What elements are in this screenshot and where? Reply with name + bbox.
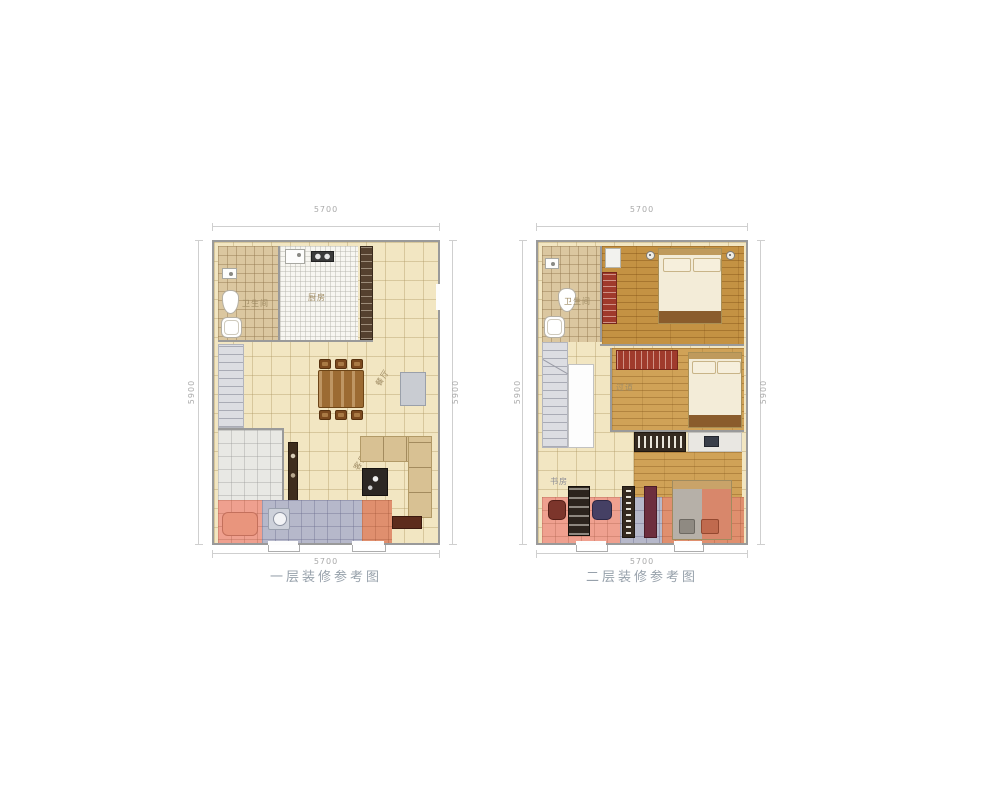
cushion-icon [679,519,695,534]
chair [319,410,331,420]
bed-headboard [673,481,731,489]
bathroom-label: 卫生间 [242,300,269,308]
bed-headboard [659,249,721,255]
floor1-utility-room [218,430,282,502]
wall [282,428,284,504]
window-sill [268,545,300,552]
window-sill [674,545,704,552]
wall [600,344,744,346]
pillow-icon [693,258,721,272]
bathtub-icon [221,317,242,338]
double-bed [688,352,742,428]
dim-right: 5900 [452,372,460,412]
bedside-lamp-icon [646,251,655,260]
study-desk [568,486,590,536]
dim-bottom: 5700 [212,558,440,566]
staircase [542,342,568,448]
coffee-table [362,468,388,496]
kitchen-label: 厨房 [308,294,326,302]
bookcase [622,486,635,538]
bedside-lamp-icon [726,251,735,260]
dim-top: 5700 [536,206,748,214]
floor1-plan: 卫生间 厨房 餐厅 客厅 [212,240,440,545]
study-label: 书房 [550,478,568,486]
bed-blanket [659,311,721,323]
dim-bottom: 5700 [536,558,748,566]
wardrobe [602,272,617,324]
pillow-icon [663,258,691,272]
dim-line [536,226,748,227]
window-sill [352,545,386,552]
chair [592,500,612,520]
bed-headboard [689,353,741,359]
dresser [605,248,621,268]
stove-icon [311,251,334,262]
dim-line [198,240,199,545]
side-cabinet [392,516,422,529]
staircase [218,344,244,428]
chair [335,359,347,369]
bed-blanket [689,415,741,427]
dining-label: 餐厅 [375,368,391,388]
pillow-icon [692,361,716,374]
chair [548,500,566,520]
dim-right: 5900 [760,372,768,412]
dim-line [536,553,748,554]
balcony-daybed [222,512,258,536]
floor1-caption: 一层装修参考图 [212,571,440,584]
chair [351,359,363,369]
chair [335,410,347,420]
dim-left: 5900 [514,372,522,412]
chair [351,410,363,420]
wardrobe [644,486,657,538]
pantry-cabinet [360,246,373,340]
corridor-label: 过道 [616,384,634,392]
bookshelf [634,432,686,452]
entry-door-opening [436,284,440,310]
laptop-icon [704,436,719,447]
dim-top: 5700 [212,206,440,214]
shoe-cabinet [400,372,426,406]
bathroom-label: 卫生间 [564,298,591,306]
single-bed [672,480,732,540]
dining-table [318,370,364,408]
window-sill [576,545,608,552]
balcony-salmon-zone [362,500,392,543]
wall [218,340,373,342]
sofa [360,436,410,462]
sink-icon [222,268,237,279]
washer-drum-icon [273,512,287,526]
stairwell-void [568,364,594,448]
double-bed [658,248,722,324]
wardrobe [616,350,678,370]
dim-line [212,226,440,227]
sink-icon [545,258,559,269]
floor2-plan: 卫生间 过道 书房 [536,240,748,545]
wall [610,348,612,430]
pillow-icon [717,361,741,374]
dim-left: 5900 [188,372,196,412]
washing-machine-icon [268,508,290,530]
kitchen-sink-icon [285,249,305,264]
chair [319,359,331,369]
dim-line [212,553,440,554]
dim-line [522,240,523,545]
bathtub-icon [544,316,565,338]
floor2-caption: 二层装修参考图 [536,571,748,584]
sofa [408,436,432,518]
cushion-icon [701,519,719,534]
